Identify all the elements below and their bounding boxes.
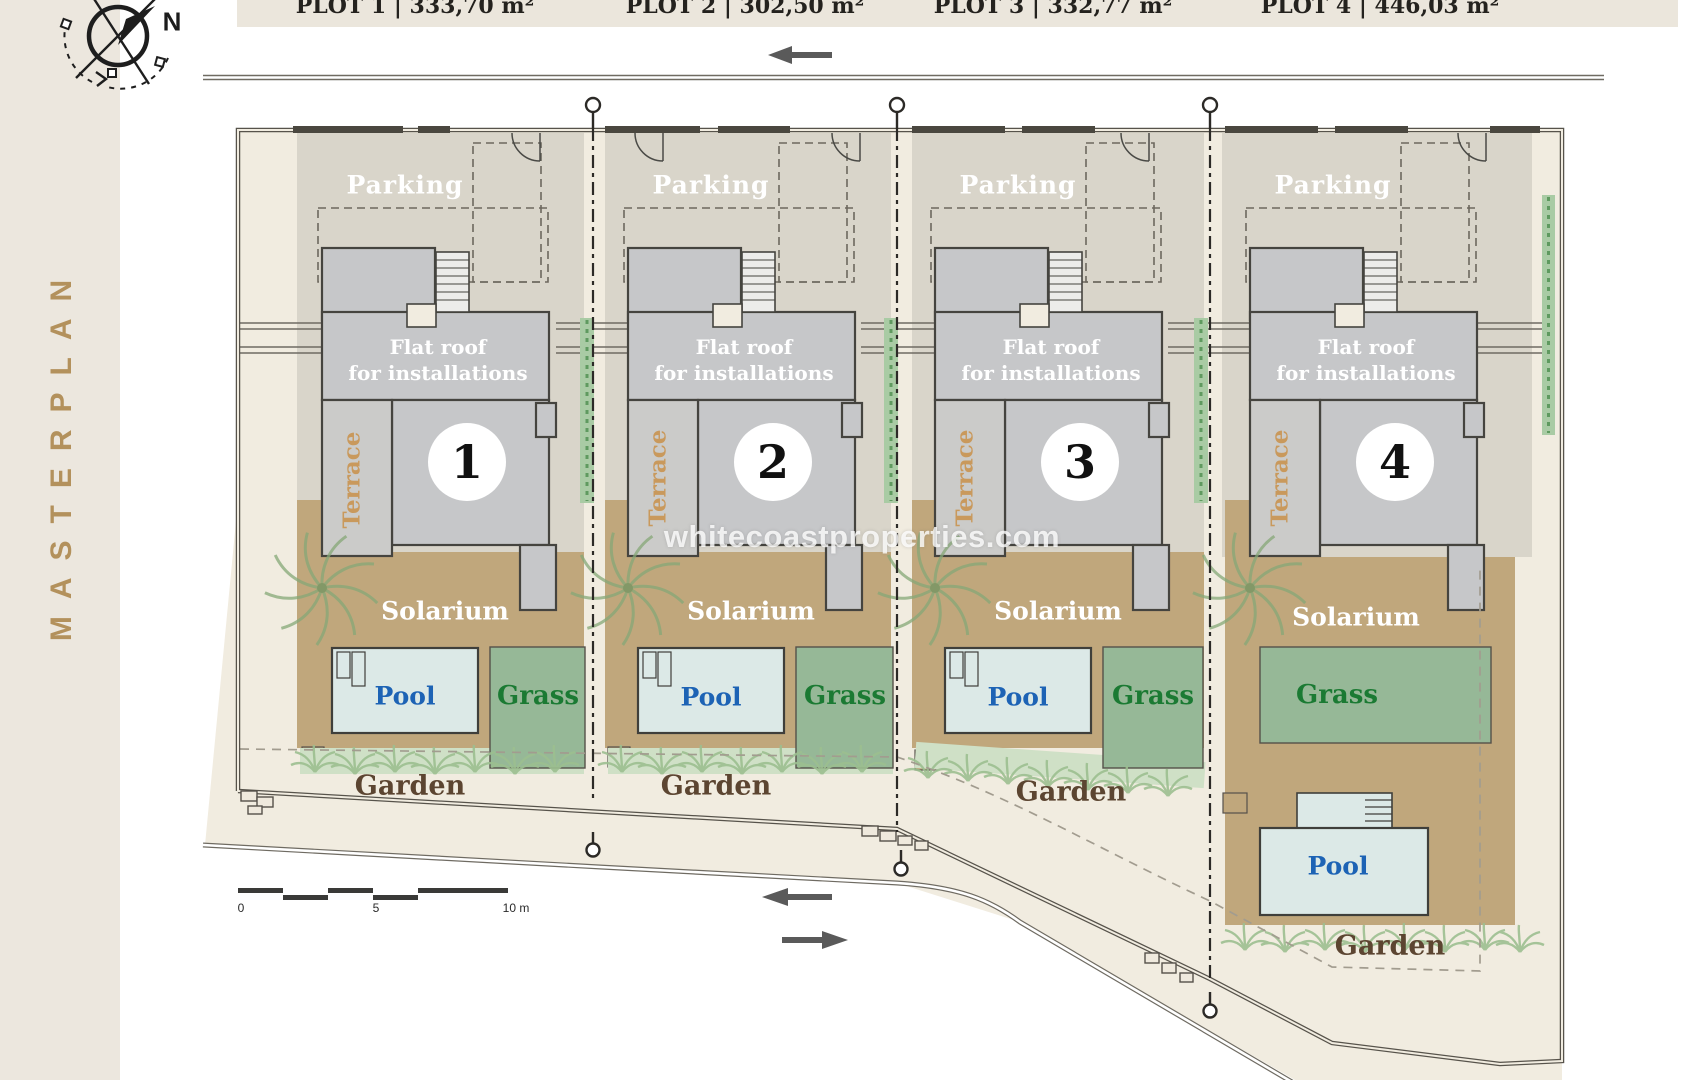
scale-tick-10: 10 m <box>503 901 530 915</box>
bottom-road-arrow-left <box>762 888 832 906</box>
plot-3-terrace-label: Terrace <box>952 430 979 527</box>
plot-1-number-badge: 1 <box>428 423 506 501</box>
plot-1-header: PLOT 1 | 333,70 m² <box>296 0 535 19</box>
plot-4-grass-label: Grass <box>1296 680 1378 710</box>
plot-1-solarium-label: Solarium <box>381 597 509 626</box>
plot-4-header: PLOT 4 | 446,03 m² <box>1261 0 1500 19</box>
top-road-arrow-left <box>768 46 832 64</box>
watermark: whitecoastproperties.com <box>664 519 1060 555</box>
plot-1-grass-label: Grass <box>497 681 579 711</box>
plot-4-number-badge: 4 <box>1356 423 1434 501</box>
scale-bar <box>238 888 508 900</box>
compass-icon <box>61 0 168 89</box>
masterplan-canvas: MASTERPLAN <box>0 0 1700 1080</box>
plot-1-flat-roof-label: Flat rooffor installations <box>343 334 533 386</box>
plot-3-pool-label: Pool <box>988 683 1049 712</box>
plot-2-grass-label: Grass <box>804 681 886 711</box>
plot-1-parking-label: Parking <box>347 171 464 200</box>
plot-2-garden-label: Garden <box>661 771 771 802</box>
plot-4-pool-ledge <box>1297 793 1392 828</box>
plot-2-parking-label: Parking <box>653 171 770 200</box>
plot-2-solarium-label: Solarium <box>687 597 815 626</box>
plot-3-header: PLOT 3 | 332,77 m² <box>934 0 1173 19</box>
compass-north-label: N <box>163 7 182 38</box>
plot-1-pool-label: Pool <box>375 682 436 711</box>
plot-2-header: PLOT 2 | 302,50 m² <box>626 0 865 19</box>
plot-2-pool-label: Pool <box>681 683 742 712</box>
plot-1-garden-label: Garden <box>355 771 465 802</box>
plot-4-solarium-label: Solarium <box>1292 603 1420 632</box>
bottom-road-arrow-right <box>782 931 848 949</box>
scale-tick-5: 5 <box>373 901 380 915</box>
plot-3-flat-roof-label: Flat rooffor installations <box>956 334 1146 386</box>
plot-3-parking-label: Parking <box>960 171 1077 200</box>
plot-3-solarium-label: Solarium <box>994 597 1122 626</box>
plot-1-terrace-label: Terrace <box>339 432 366 529</box>
plot-3-grass-label: Grass <box>1112 681 1194 711</box>
plot-4-terrace-label: Terrace <box>1267 430 1294 527</box>
plot-4-garden-label: Garden <box>1335 931 1445 962</box>
plot-2-terrace-label: Terrace <box>645 430 672 527</box>
scale-tick-0: 0 <box>238 901 245 915</box>
plot-4-parking-label: Parking <box>1275 171 1392 200</box>
plot-header-strip: PLOT 1 | 333,70 m² PLOT 2 | 302,50 m² PL… <box>237 0 1678 27</box>
plot-4-flat-roof-label: Flat rooffor installations <box>1271 334 1461 386</box>
plot-2-flat-roof-label: Flat rooffor installations <box>649 334 839 386</box>
plot-4-pool-label: Pool <box>1308 852 1369 881</box>
plot-2-number-badge: 2 <box>734 423 812 501</box>
plot-3-garden-label: Garden <box>1016 777 1126 808</box>
top-road <box>203 76 1604 80</box>
plot-3-number-badge: 3 <box>1041 423 1119 501</box>
